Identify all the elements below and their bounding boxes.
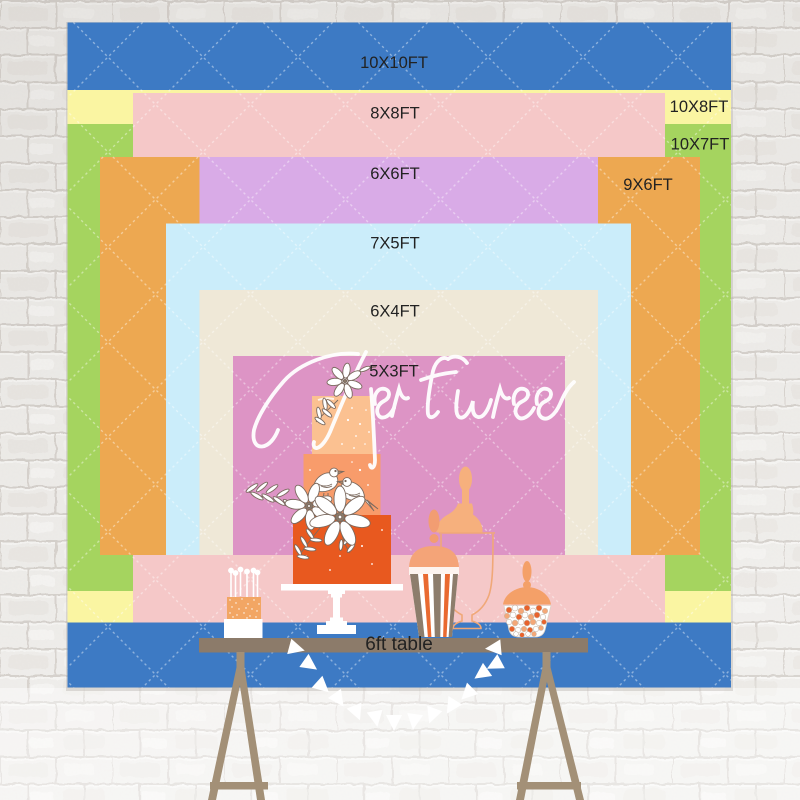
- svg-text:6X4FT: 6X4FT: [370, 303, 420, 321]
- svg-text:7X5FT: 7X5FT: [370, 235, 420, 253]
- svg-text:10X7FT: 10X7FT: [671, 136, 730, 154]
- svg-text:5X3FT: 5X3FT: [369, 363, 419, 381]
- svg-text:10X10FT: 10X10FT: [360, 54, 428, 72]
- svg-text:9X6FT: 9X6FT: [623, 176, 673, 194]
- svg-text:8X8FT: 8X8FT: [370, 105, 420, 123]
- svg-text:6X6FT: 6X6FT: [370, 165, 420, 183]
- svg-text:10X8FT: 10X8FT: [670, 98, 729, 116]
- svg-text:6ft table: 6ft table: [365, 634, 433, 655]
